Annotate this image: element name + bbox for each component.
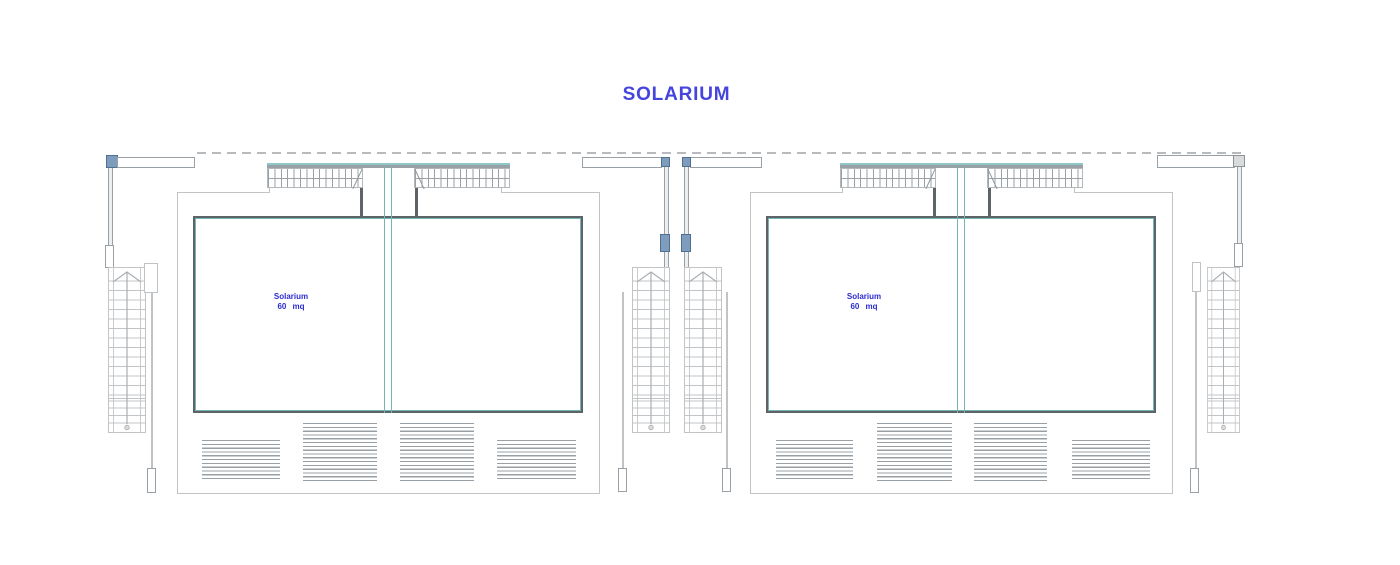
column-marker-blue <box>661 157 670 167</box>
column-marker-gray <box>1233 155 1245 167</box>
canopy-beam <box>117 157 195 168</box>
floor-plan-canvas: SOLARIUM Solarium 60 mq <box>0 0 1400 565</box>
building-unit-right: Solarium 60 mq <box>750 0 1173 565</box>
guard-rail <box>622 292 624 468</box>
rail-post-bottom <box>147 468 156 493</box>
unit-boundary-bottom <box>177 493 600 494</box>
door-jamb-left <box>933 188 936 218</box>
unit-boundary-top-left <box>750 192 843 193</box>
unit-boundary-right <box>599 192 600 494</box>
louver-vent <box>303 423 377 482</box>
room-label: Solarium <box>814 292 914 302</box>
stair-far-right <box>1207 267 1240 433</box>
pergola-hatch-right <box>987 168 1083 188</box>
unit-boundary-left <box>177 192 178 494</box>
rail-post-bottom <box>1190 468 1199 493</box>
unit-boundary-top-right <box>501 192 600 193</box>
unit-boundary-right <box>1172 192 1173 494</box>
glass-partition-wall <box>957 166 965 413</box>
column-marker-blue <box>660 234 670 252</box>
column-marker <box>1234 243 1243 267</box>
support-post-wall <box>108 168 113 245</box>
unit-boundary-top-left <box>177 192 270 193</box>
column-marker-blue <box>681 234 691 252</box>
rail-post-bottom <box>618 468 627 492</box>
stair-center-left <box>632 267 670 433</box>
canopy-beam <box>1157 155 1235 168</box>
room-label-block: Solarium 60 mq <box>814 292 914 311</box>
canopy-beam <box>690 157 762 168</box>
guard-rail <box>151 293 153 468</box>
pergola-hatch-right <box>414 168 510 188</box>
stair-center-right <box>684 267 722 433</box>
louver-vent <box>1072 440 1150 482</box>
rail-post-bottom <box>722 468 731 492</box>
rail-post-top <box>1192 262 1201 292</box>
stair-far-left <box>108 267 146 433</box>
louver-vent <box>497 440 576 482</box>
unit-boundary-top-right <box>1074 192 1173 193</box>
louver-vent <box>202 440 280 482</box>
unit-boundary-left <box>750 192 751 494</box>
door-jamb-right <box>415 188 418 218</box>
louver-vent <box>400 423 474 482</box>
louver-vent <box>776 440 853 482</box>
unit-boundary-bottom <box>750 493 1173 494</box>
rail-post-top <box>144 263 158 293</box>
support-post-wall <box>664 167 669 267</box>
room-label: Solarium <box>241 292 341 302</box>
canopy-beam <box>582 157 662 168</box>
glass-partition-wall <box>384 166 392 413</box>
room-label-block: Solarium 60 mq <box>241 292 341 311</box>
louver-vent <box>974 423 1047 482</box>
door-jamb-right <box>988 188 991 218</box>
louver-vent <box>877 423 952 482</box>
building-unit-left: Solarium 60 mq <box>177 0 600 565</box>
pergola-hatch-left <box>267 168 363 188</box>
support-post-wall <box>684 167 689 267</box>
column-marker <box>105 245 114 268</box>
column-marker-blue <box>682 157 691 167</box>
guard-rail <box>1195 292 1197 468</box>
pergola-hatch-left <box>840 168 936 188</box>
area-label: 60 mq <box>241 302 341 312</box>
support-post-wall <box>1237 167 1242 243</box>
guard-rail <box>726 292 728 468</box>
area-label: 60 mq <box>814 302 914 312</box>
door-jamb-left <box>360 188 363 218</box>
